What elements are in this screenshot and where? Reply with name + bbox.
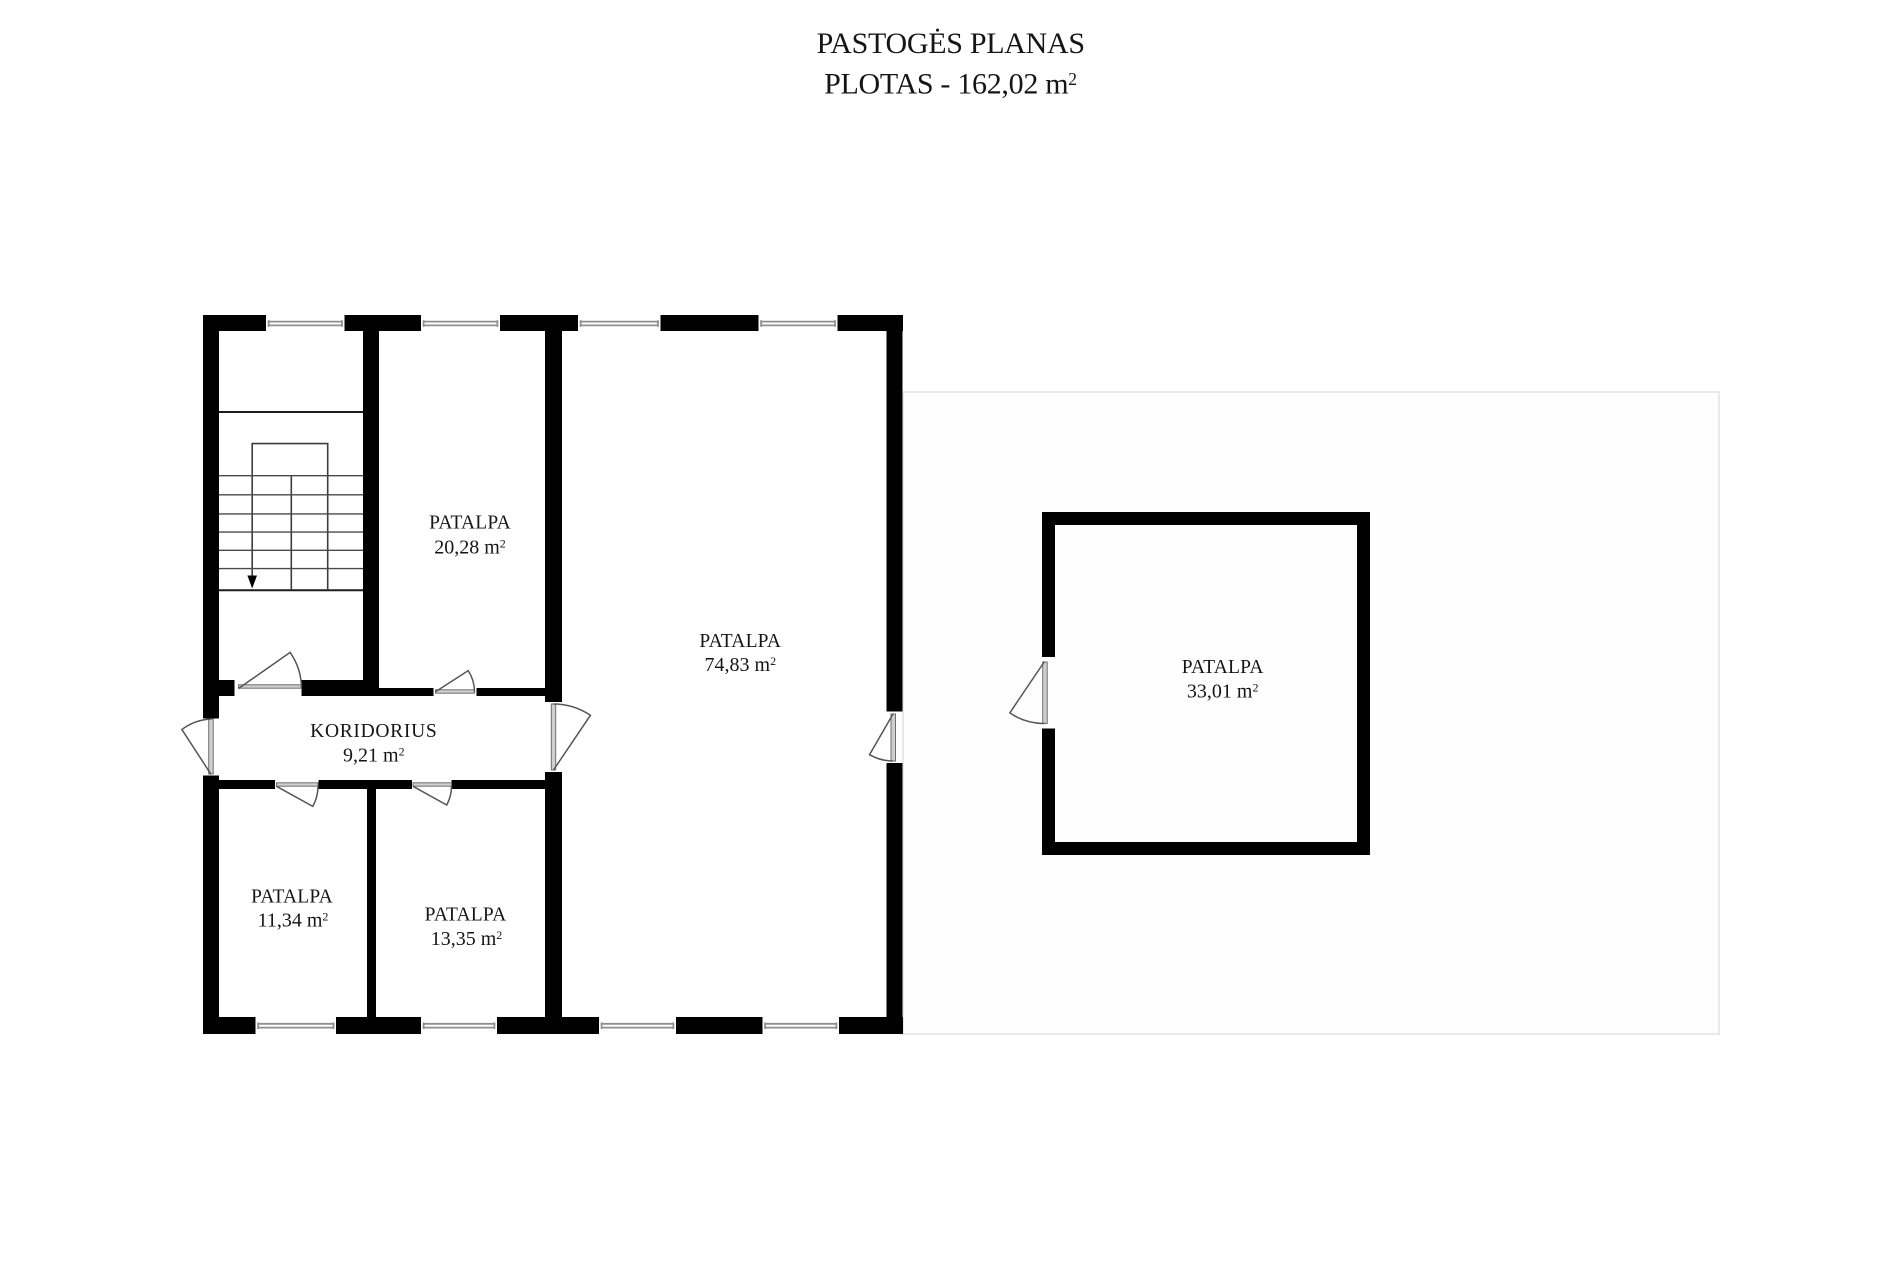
svg-text:PASTOGĖS PLANAS: PASTOGĖS PLANAS	[817, 27, 1085, 60]
svg-text:33,01 m2: 33,01 m2	[1187, 681, 1259, 703]
svg-text:74,83 m2: 74,83 m2	[705, 654, 777, 676]
svg-text:PATALPA: PATALPA	[425, 905, 507, 926]
svg-text:PATALPA: PATALPA	[1182, 657, 1264, 678]
svg-text:13,35 m2: 13,35 m2	[431, 928, 503, 950]
svg-text:PLOTAS - 162,02 m2: PLOTAS - 162,02 m2	[824, 68, 1077, 101]
svg-text:PATALPA: PATALPA	[429, 513, 511, 534]
svg-text:PATALPA: PATALPA	[699, 631, 781, 652]
svg-text:PATALPA: PATALPA	[251, 887, 333, 908]
svg-text:KORIDORIUS: KORIDORIUS	[310, 721, 437, 742]
svg-text:9,21 m2: 9,21 m2	[343, 745, 405, 767]
svg-text:20,28 m2: 20,28 m2	[434, 537, 506, 559]
svg-text:11,34 m2: 11,34 m2	[258, 910, 329, 932]
